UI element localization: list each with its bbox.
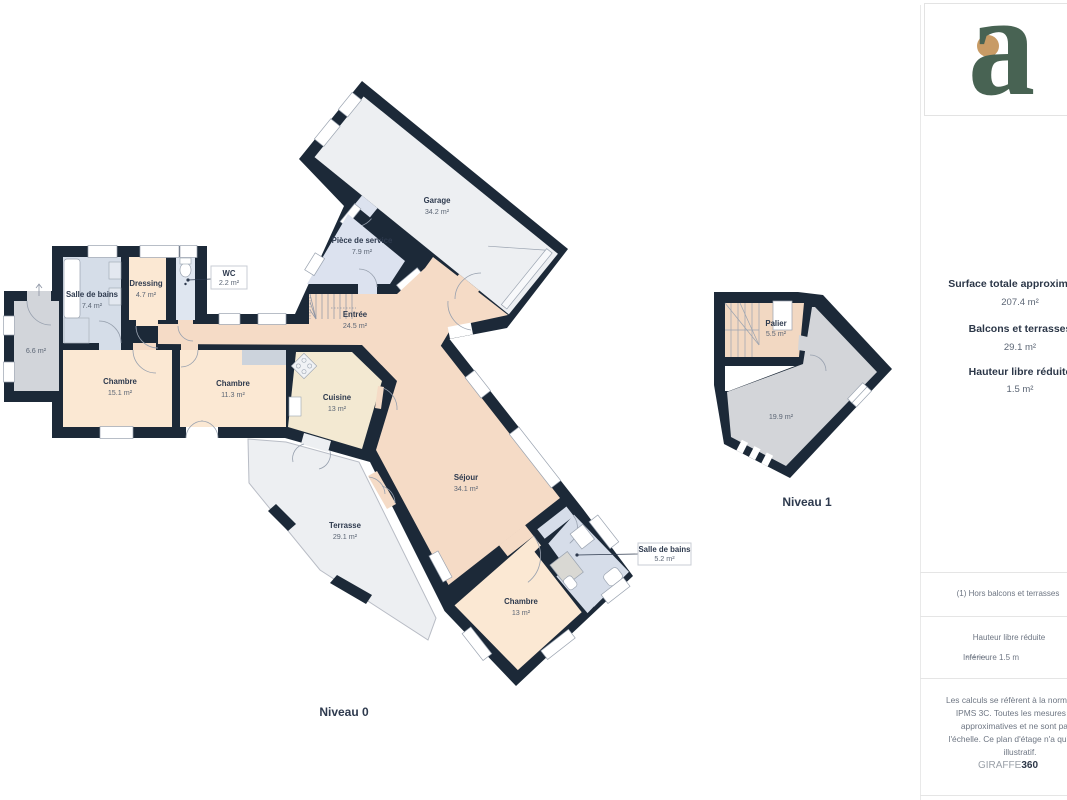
svg-text:a: a xyxy=(968,0,1035,126)
svg-text:207.4 m²: 207.4 m² xyxy=(1001,297,1039,308)
svg-text:Séjour: Séjour xyxy=(454,473,478,482)
svg-text:Pièce de service: Pièce de service xyxy=(332,236,393,245)
svg-text:Balcons et terrasses: Balcons et terrasses xyxy=(969,323,1067,335)
svg-text:Salle de bains: Salle de bains xyxy=(638,545,691,554)
svg-text:IPMS 3C. Toutes les mesures so: IPMS 3C. Toutes les mesures sont xyxy=(956,708,1067,718)
svg-text:34.1 m²: 34.1 m² xyxy=(454,484,479,493)
svg-text:Niveau 1: Niveau 1 xyxy=(782,495,832,509)
svg-text:Les calculs se réfèrent à la n: Les calculs se réfèrent à la norme RICS xyxy=(946,695,1067,705)
svg-text:Chambre: Chambre xyxy=(504,597,538,606)
svg-text:13 m²: 13 m² xyxy=(328,404,347,413)
svg-text:(1) Hors balcons et terrasses: (1) Hors balcons et terrasses xyxy=(957,589,1060,598)
svg-text:Cuisine: Cuisine xyxy=(323,393,352,402)
svg-text:l'échelle. Ce plan d'étage n'a: l'échelle. Ce plan d'étage n'a qu'un but xyxy=(949,734,1067,744)
svg-text:Palier: Palier xyxy=(765,319,786,328)
svg-text:WC: WC xyxy=(223,269,236,278)
svg-text:15.1 m²: 15.1 m² xyxy=(108,388,133,397)
svg-text:2.2 m²: 2.2 m² xyxy=(219,278,240,287)
svg-text:Niveau 0: Niveau 0 xyxy=(319,705,369,719)
svg-text:Salle de bains: Salle de bains xyxy=(66,290,119,299)
svg-text:24.5 m²: 24.5 m² xyxy=(343,321,368,330)
svg-text:Dressing: Dressing xyxy=(129,279,163,288)
svg-text:Entrée: Entrée xyxy=(343,310,368,319)
svg-text:illustratif.: illustratif. xyxy=(1003,747,1036,757)
svg-text:approximatives et ne sont pas: approximatives et ne sont pas à xyxy=(961,721,1067,731)
svg-text:7.4 m²: 7.4 m² xyxy=(82,301,103,310)
svg-text:11.3 m²: 11.3 m² xyxy=(221,390,245,399)
svg-text:13 m²: 13 m² xyxy=(512,608,531,617)
svg-text:Chambre: Chambre xyxy=(103,377,137,386)
svg-text:29.1 m²: 29.1 m² xyxy=(333,532,358,541)
svg-text:GIRAFFE360: GIRAFFE360 xyxy=(978,760,1038,771)
svg-text:Hauteur libre réduite: Hauteur libre réduite xyxy=(973,633,1046,642)
svg-text:1.5 m²: 1.5 m² xyxy=(1007,384,1034,395)
svg-text:6.6 m²: 6.6 m² xyxy=(26,346,47,355)
svg-text:7.9 m²: 7.9 m² xyxy=(352,247,373,256)
svg-text:Surface totale approximative: Surface totale approximative xyxy=(948,278,1067,290)
svg-text:19.9 m²: 19.9 m² xyxy=(769,412,794,421)
svg-text:34.2 m²: 34.2 m² xyxy=(425,207,450,216)
svg-text:29.1 m²: 29.1 m² xyxy=(1004,342,1036,353)
svg-text:Hauteur libre réduite: Hauteur libre réduite xyxy=(969,366,1067,378)
svg-text:Inférieure 1.5 m: Inférieure 1.5 m xyxy=(963,653,1019,662)
svg-text:4.7 m²: 4.7 m² xyxy=(136,290,157,299)
svg-text:5.2 m²: 5.2 m² xyxy=(654,554,675,563)
svg-text:Chambre: Chambre xyxy=(216,379,250,388)
svg-text:5.5 m²: 5.5 m² xyxy=(766,329,787,338)
svg-text:Terrasse: Terrasse xyxy=(329,521,362,530)
svg-text:Garage: Garage xyxy=(424,196,452,205)
